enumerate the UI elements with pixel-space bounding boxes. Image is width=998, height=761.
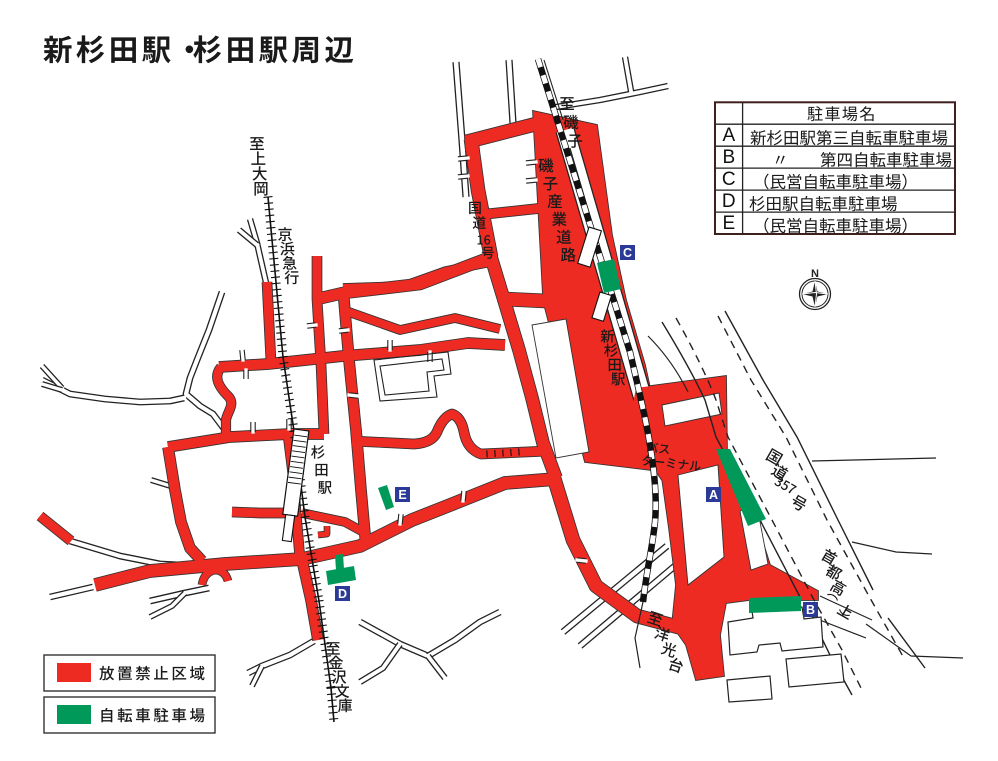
svg-text:E: E (398, 488, 406, 502)
svg-text:D: D (722, 191, 736, 212)
svg-text:B: B (806, 603, 815, 617)
svg-text:A: A (722, 125, 735, 146)
svg-text:B: B (722, 147, 735, 168)
svg-text:C: C (722, 169, 736, 190)
svg-text:A: A (709, 488, 718, 502)
svg-text:C: C (623, 246, 632, 260)
svg-text:N: N (811, 268, 819, 280)
svg-text:D: D (338, 587, 347, 601)
svg-text:E: E (722, 213, 735, 234)
